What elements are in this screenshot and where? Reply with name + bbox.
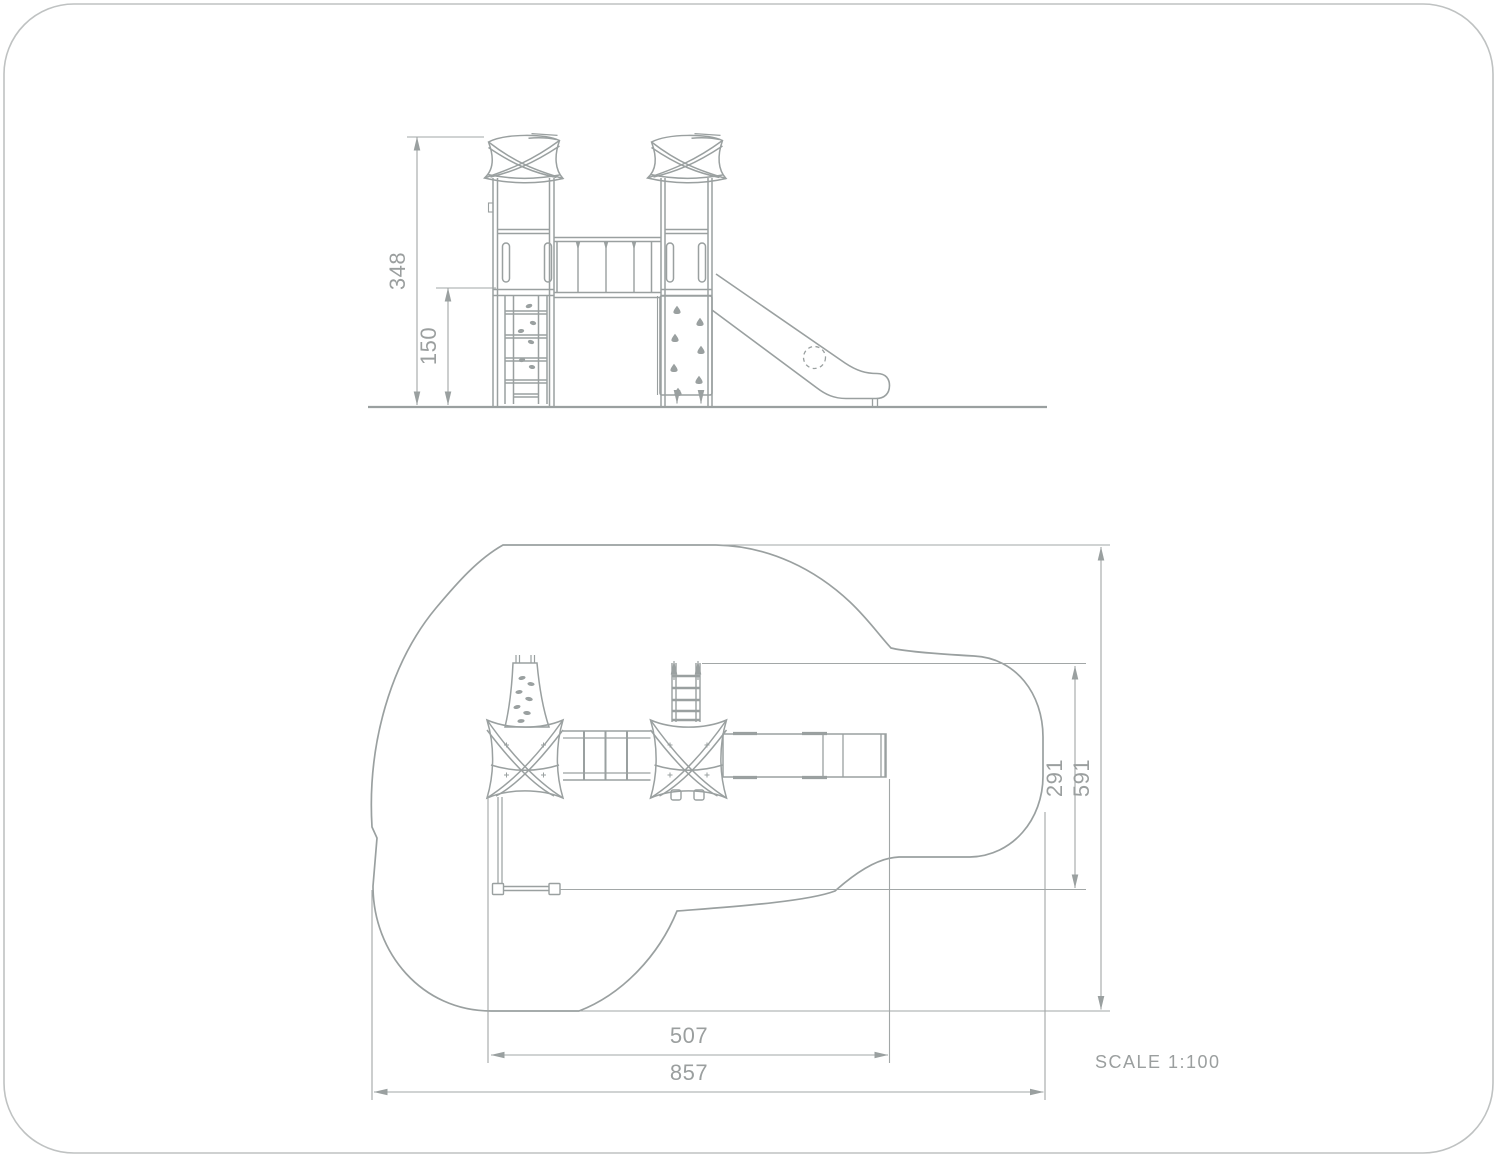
plan-extension-lines bbox=[372, 545, 1110, 1100]
ladder-plan bbox=[672, 661, 700, 722]
elevation-view: 348 150 bbox=[368, 134, 1047, 407]
climbing-wall-holds bbox=[670, 306, 704, 396]
plan-view: 291 591 507 857 bbox=[371, 545, 1110, 1100]
right-tower-roof-plan bbox=[651, 720, 727, 798]
left-climb-holds bbox=[518, 303, 537, 369]
dim-label-total-height: 348 bbox=[385, 252, 410, 290]
technical-drawing-canvas: 348 150 bbox=[0, 0, 1497, 1157]
bridge-elevation bbox=[554, 238, 661, 298]
dim-label-total-depth: 591 bbox=[1069, 759, 1094, 797]
climbing-wall-panel bbox=[660, 296, 712, 395]
dim-label-platform-height: 150 bbox=[416, 327, 441, 365]
climbing-wall-plan bbox=[505, 655, 549, 727]
safety-zone-outline bbox=[371, 545, 1043, 1011]
scale-label: SCALE 1:100 bbox=[1095, 1052, 1221, 1072]
left-tower-roof bbox=[485, 134, 564, 183]
drawing-sheet: 348 150 bbox=[0, 0, 1497, 1157]
slide-detail-circle bbox=[804, 347, 826, 369]
dim-label-inner-width: 507 bbox=[670, 1023, 708, 1048]
dim-label-inner-depth: 291 bbox=[1042, 759, 1067, 797]
left-tower-roof-plan bbox=[487, 720, 563, 798]
slide-elevation bbox=[712, 274, 890, 407]
bridge-plan bbox=[563, 731, 651, 780]
right-tower-elevation bbox=[648, 134, 727, 407]
left-tower-elevation bbox=[485, 134, 564, 407]
dim-label-total-width: 857 bbox=[670, 1060, 708, 1085]
handrail-posts-plan bbox=[493, 797, 561, 895]
sheet-border bbox=[4, 4, 1493, 1153]
right-tower-roof bbox=[648, 134, 727, 183]
slide-plan bbox=[723, 734, 886, 778]
